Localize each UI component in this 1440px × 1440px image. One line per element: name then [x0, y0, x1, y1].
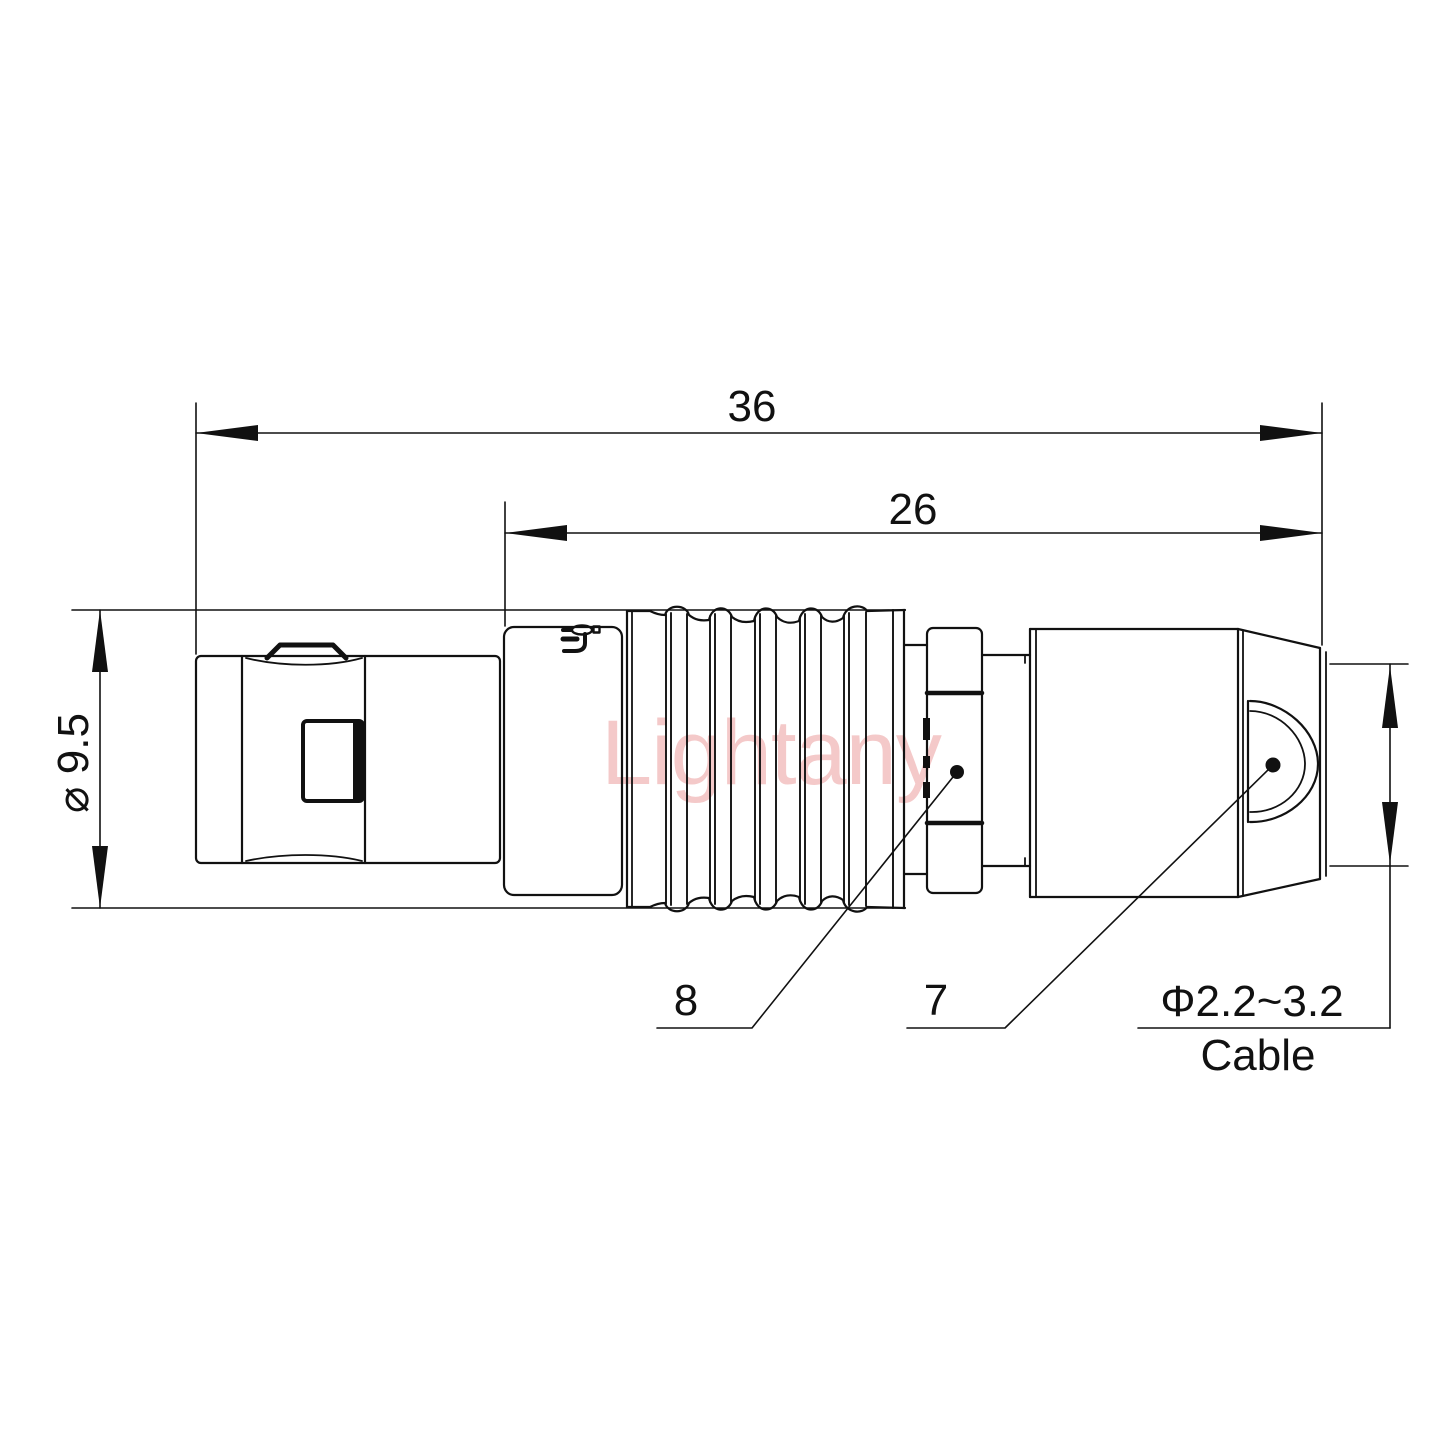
label-layer: 36 26 ⌀ 9.5 8 7 Φ2.2~3.2 Cable [0, 0, 1440, 1440]
dim-rear-length-label: 26 [889, 488, 938, 532]
cable-word-label: Cable [1201, 1034, 1316, 1078]
cable-diameter-label: Φ2.2~3.2 [1160, 980, 1343, 1024]
dim-overall-length-label: 36 [728, 385, 777, 429]
part-callout-8-label: 8 [674, 979, 698, 1023]
technical-drawing-page: { "drawing": { "dimensions": { "overall_… [0, 0, 1440, 1440]
dim-diameter-label: ⌀ 9.5 [52, 713, 96, 813]
part-callout-7-label: 7 [924, 979, 948, 1023]
